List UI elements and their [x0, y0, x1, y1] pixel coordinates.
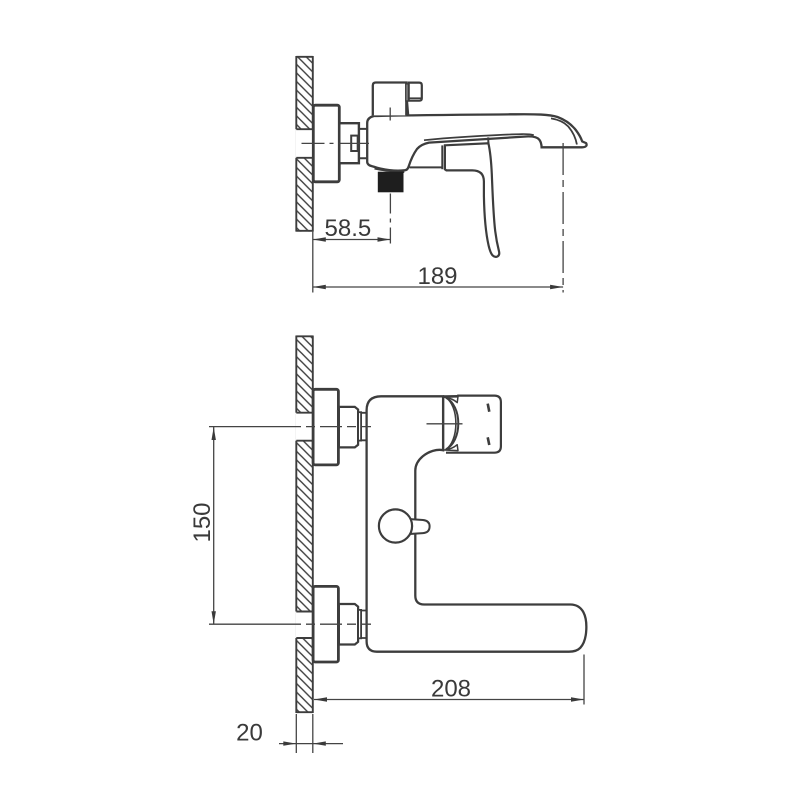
svg-text:20: 20: [236, 720, 263, 747]
svg-text:58.5: 58.5: [325, 215, 372, 242]
svg-text:208: 208: [431, 676, 471, 703]
svg-text:189: 189: [417, 263, 457, 290]
svg-text:150: 150: [189, 502, 216, 542]
